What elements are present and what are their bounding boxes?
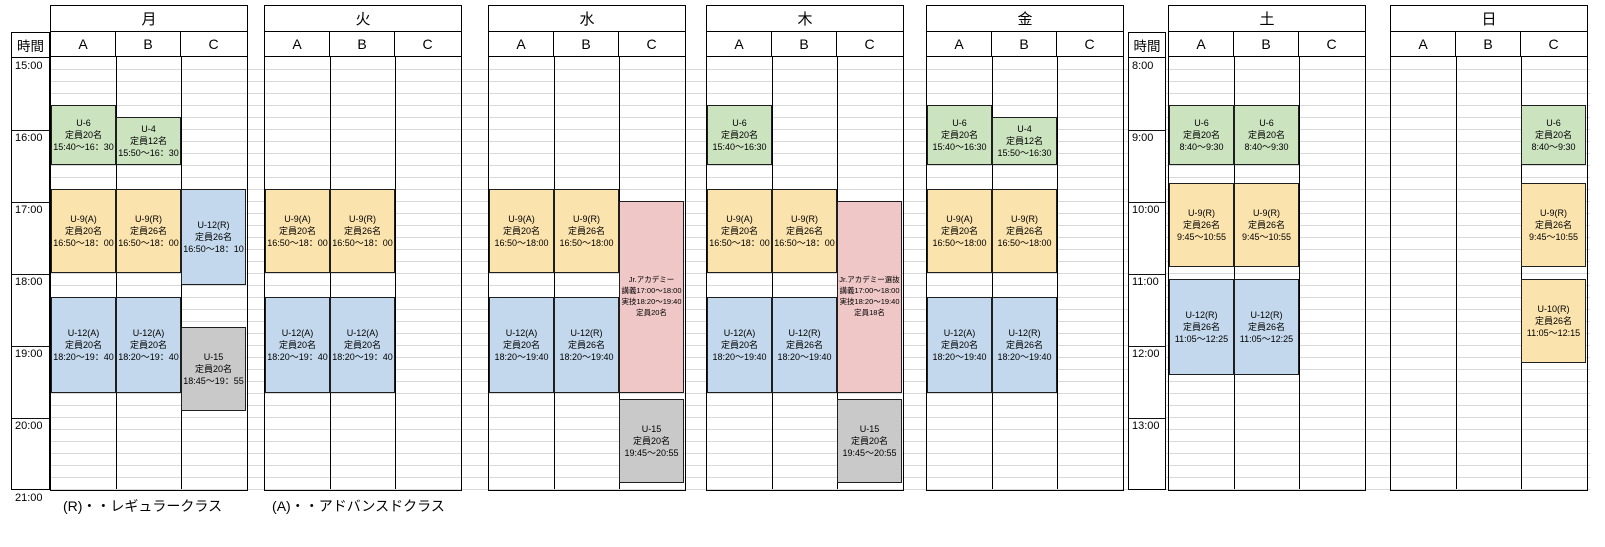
- event-block[interactable]: U-9(R)定員26名9:45～10:55: [1169, 183, 1234, 267]
- event-line: 定員26名: [1535, 315, 1572, 327]
- event-line: U-12(A): [282, 327, 314, 339]
- column-header-b: B: [116, 32, 181, 56]
- event-line: 定員20名: [941, 225, 978, 237]
- event-line: U-15: [204, 351, 224, 363]
- event-line: 定員20名: [503, 225, 540, 237]
- event-line: 9:45～10:55: [1177, 231, 1226, 243]
- event-line: 定員20名: [279, 339, 316, 351]
- time-column-header: 時間: [1128, 32, 1166, 58]
- event-line: U-6: [1259, 117, 1274, 129]
- event-line: U-9(A): [508, 213, 535, 225]
- event-line: U-6: [1194, 117, 1209, 129]
- event-line: 16:50～18:00: [932, 237, 986, 249]
- event-line: U-9(R): [1253, 207, 1280, 219]
- event-line: U-9(R): [1540, 207, 1567, 219]
- column-header-b: B: [992, 32, 1057, 56]
- event-block[interactable]: U-12(R)定員26名11:05～12:25: [1169, 279, 1234, 375]
- hour-line: [1129, 130, 1165, 131]
- event-line: 定員20名: [941, 339, 978, 351]
- event-line: U-12(R): [1185, 309, 1217, 321]
- time-label: 10:00: [1132, 204, 1160, 216]
- event-line: 定員20名: [1248, 129, 1285, 141]
- column-header-row: ABC: [489, 32, 685, 57]
- column-header-c: C: [1299, 32, 1364, 56]
- event-line: 11:05～12:25: [1175, 333, 1228, 345]
- event-line: 実技18:20～19:40: [839, 297, 899, 308]
- event-line: U-9(R): [1188, 207, 1215, 219]
- event-line: U-12(A): [68, 327, 100, 339]
- event-line: 18:20～19：40: [332, 351, 393, 363]
- event-line: U-12(R): [788, 327, 820, 339]
- time-column-body: 15:0016:0017:0018:0019:0020:0021:00: [11, 58, 50, 490]
- event-line: 定員26名: [1183, 321, 1220, 333]
- day-block-thu: 木ABCU-6定員20名15:40～16:30U-9(A)定員20名16:50～…: [706, 5, 904, 491]
- event-line: U-9(R): [1011, 213, 1038, 225]
- column-header-a: A: [707, 32, 772, 56]
- event-line: 11:05～12:15: [1527, 327, 1580, 339]
- event-line: Jr.アカデミー選抜: [839, 275, 899, 286]
- event-line: 16:50～18：00: [709, 237, 770, 249]
- event-line: 定員20名: [851, 435, 888, 447]
- event-line: U-9(R): [349, 213, 376, 225]
- day-body: U-9(A)定員20名16:50～18：00U-9(R)定員26名16:50～1…: [265, 57, 461, 489]
- event-line: 実技18:20～19:40: [621, 297, 681, 308]
- event-line: 16:50～18:00: [494, 237, 548, 249]
- event-block[interactable]: U-9(A)定員20名16:50～18：00: [265, 189, 330, 273]
- event-block[interactable]: U-12(A)定員20名18:20～19：40: [330, 297, 395, 393]
- event-line: U-4: [141, 123, 156, 135]
- hour-line: [12, 418, 49, 419]
- event-line: 16:50～18：00: [118, 237, 179, 249]
- event-line: 19:45～20:55: [842, 447, 896, 459]
- event-line: 16:50～18:00: [559, 237, 613, 249]
- event-block[interactable]: U-12(A)定員20名18:20～19：40: [51, 297, 116, 393]
- time-label: 13:00: [1132, 420, 1160, 432]
- column-header-b: B: [554, 32, 619, 56]
- event-line: 定員20名: [1183, 129, 1220, 141]
- column-divider: [330, 57, 331, 489]
- column-header-c: C: [1057, 32, 1122, 56]
- event-block[interactable]: U-12(A)定員20名18:20～19：40: [116, 297, 181, 393]
- event-block[interactable]: U-15定員20名18:45～19：55: [181, 327, 246, 411]
- event-line: 11:05～12:25: [1240, 333, 1293, 345]
- event-line: U-9(A): [284, 213, 311, 225]
- event-line: U-6: [76, 117, 91, 129]
- event-line: U-6: [1546, 117, 1561, 129]
- event-line: 定員20名: [65, 225, 102, 237]
- event-line: U-12(A): [944, 327, 976, 339]
- legend: (R)・・レギュラークラス (A)・・アドバンスドクラス: [63, 496, 491, 516]
- event-line: U-9(R): [791, 213, 818, 225]
- event-line: 9:45～10:55: [1242, 231, 1291, 243]
- event-block[interactable]: U-9(R)定員26名9:45～10:55: [1234, 183, 1299, 267]
- time-label: 8:00: [1132, 60, 1153, 72]
- event-block[interactable]: U-6定員20名15:40～16:30: [707, 105, 772, 165]
- day-block-mon: 月ABCU-6定員20名15:40～16：30U-4定員12名15:50～16：…: [50, 5, 248, 491]
- event-line: U-12(A): [724, 327, 756, 339]
- hour-line: [12, 202, 49, 203]
- hour-line: [1129, 346, 1165, 347]
- event-line: 18:20～19：40: [118, 351, 179, 363]
- event-block[interactable]: U-12(R)定員26名18:20～19:40: [554, 297, 619, 393]
- event-line: 定員20名: [65, 339, 102, 351]
- event-line: U-10(R): [1537, 303, 1569, 315]
- time-column-left: 時間15:0016:0017:0018:0019:0020:0021:00: [11, 32, 50, 490]
- event-line: 講義17:00～18:00: [839, 286, 899, 297]
- event-block[interactable]: U-15定員20名19:45～20:55: [619, 399, 684, 483]
- hour-line: [12, 274, 49, 275]
- day-header-thu: 木: [707, 6, 903, 32]
- event-line: 定員20名: [130, 339, 167, 351]
- event-block[interactable]: U-6定員20名8:40～9:30: [1521, 105, 1586, 165]
- event-line: 18:20～19:40: [712, 351, 766, 363]
- day-body: U-6定員20名15:40～16:30U-4定員12名15:50～16:30U-…: [927, 57, 1123, 489]
- column-header-row: ABC: [1169, 32, 1365, 57]
- event-line: 16:50～18：10: [183, 243, 244, 255]
- event-line: 19:45～20:55: [624, 447, 678, 459]
- event-line: 定員20名: [941, 129, 978, 141]
- event-block[interactable]: U-9(R)定員26名9:45～10:55: [1521, 183, 1586, 267]
- day-header-wed: 水: [489, 6, 685, 32]
- event-line: 16:50～18:00: [997, 237, 1051, 249]
- event-line: 定員20名: [344, 339, 381, 351]
- hour-line: [12, 130, 49, 131]
- time-label: 17:00: [15, 204, 43, 216]
- event-line: 定員20名: [633, 435, 670, 447]
- day-header-sun: 日: [1391, 6, 1587, 32]
- event-line: 定員26名: [1248, 219, 1285, 231]
- event-block[interactable]: U-10(R)定員26名11:05～12:15: [1521, 279, 1586, 363]
- event-block[interactable]: U-9(R)定員26名16:50～18:00: [992, 189, 1057, 273]
- event-line: 定員26名: [1006, 225, 1043, 237]
- column-header-a: A: [265, 32, 330, 56]
- column-header-b: B: [330, 32, 395, 56]
- event-line: 定員26名: [786, 225, 823, 237]
- event-line: 定員20名: [279, 225, 316, 237]
- event-line: 定員26名: [568, 339, 605, 351]
- column-header-a: A: [1391, 32, 1456, 56]
- column-header-b: B: [772, 32, 837, 56]
- day-header-fri: 金: [927, 6, 1123, 32]
- column-divider: [1456, 57, 1457, 489]
- time-label: 19:00: [15, 348, 43, 360]
- event-line: U-12(R): [570, 327, 602, 339]
- event-line: 定員26名: [130, 225, 167, 237]
- day-block-wed: 水ABCU-9(A)定員20名16:50～18:00U-9(R)定員26名16:…: [488, 5, 686, 491]
- event-line: 15:40～16：30: [53, 141, 114, 153]
- event-line: U-12(A): [347, 327, 379, 339]
- event-block[interactable]: U-9(A)定員20名16:50～18:00: [489, 189, 554, 273]
- time-label: 18:00: [15, 276, 43, 288]
- event-line: 定員26名: [1183, 219, 1220, 231]
- event-block[interactable]: U-12(A)定員20名18:20～19:40: [489, 297, 554, 393]
- event-block[interactable]: U-9(A)定員20名16:50～18：00: [51, 189, 116, 273]
- day-body: U-6定員20名8:40～9:30U-9(R)定員26名9:45～10:55U-…: [1391, 57, 1587, 489]
- event-line: 定員26名: [1535, 219, 1572, 231]
- column-header-a: A: [1169, 32, 1234, 56]
- legend-advanced-class: (A)・・アドバンスドクラス: [272, 498, 445, 514]
- column-header-c: C: [1521, 32, 1586, 56]
- column-header-b: B: [1234, 32, 1299, 56]
- event-line: 15:50～16:30: [997, 147, 1051, 159]
- day-block-tue: 火ABCU-9(A)定員20名16:50～18：00U-9(R)定員26名16:…: [264, 5, 462, 491]
- event-block[interactable]: U-9(A)定員20名16:50～18:00: [927, 189, 992, 273]
- hour-line: [1129, 418, 1165, 419]
- day-body: U-6定員20名8:40～9:30U-6定員20名8:40～9:30U-9(R)…: [1169, 57, 1365, 489]
- schedule-canvas: 時間15:0016:0017:0018:0019:0020:0021:00時間8…: [0, 0, 1605, 547]
- event-block[interactable]: U-9(R)定員26名16:50～18：00: [116, 189, 181, 273]
- event-line: U-12(R): [1250, 309, 1282, 321]
- time-label: 12:00: [1132, 348, 1160, 360]
- time-label: 15:00: [15, 60, 43, 72]
- day-header-tue: 火: [265, 6, 461, 32]
- event-block[interactable]: U-4定員12名15:50～16:30: [992, 117, 1057, 165]
- column-header-c: C: [837, 32, 902, 56]
- day-block-fri: 金ABCU-6定員20名15:40～16:30U-4定員12名15:50～16:…: [926, 5, 1124, 491]
- column-header-b: B: [1456, 32, 1521, 56]
- event-block[interactable]: U-6定員20名8:40～9:30: [1169, 105, 1234, 165]
- day-body: U-9(A)定員20名16:50～18:00U-9(R)定員26名16:50～1…: [489, 57, 685, 489]
- event-line: 18:45～19：55: [183, 375, 244, 387]
- time-column-body: 8:009:0010:0011:0012:0013:00: [1128, 58, 1166, 490]
- event-line: 18:20～19:40: [932, 351, 986, 363]
- event-line: 定員26名: [344, 225, 381, 237]
- event-line: Jr.アカデミー: [629, 275, 674, 286]
- event-line: U-9(A): [946, 213, 973, 225]
- column-header-row: ABC: [51, 32, 247, 57]
- legend-regular-class: (R)・・レギュラークラス: [63, 498, 222, 514]
- event-line: U-6: [952, 117, 967, 129]
- event-block[interactable]: U-4定員12名15:50～16：30: [116, 117, 181, 165]
- event-line: 定員20名: [65, 129, 102, 141]
- event-block[interactable]: U-9(R)定員26名16:50～18:00: [554, 189, 619, 273]
- event-block[interactable]: U-12(A)定員20名18:20～19:40: [927, 297, 992, 393]
- time-column-header: 時間: [11, 32, 50, 58]
- column-header-row: ABC: [927, 32, 1123, 57]
- event-line: 定員12名: [1006, 135, 1043, 147]
- event-line: 定員26名: [568, 225, 605, 237]
- event-line: 定員20名: [721, 225, 758, 237]
- event-line: 9:45～10:55: [1529, 231, 1578, 243]
- event-block[interactable]: U-12(R)定員26名16:50～18：10: [181, 189, 246, 285]
- event-line: U-12(R): [1008, 327, 1040, 339]
- event-line: U-12(A): [133, 327, 165, 339]
- event-block[interactable]: U-12(R)定員26名11:05～12:25: [1234, 279, 1299, 375]
- time-label: 20:00: [15, 420, 43, 432]
- event-line: 定員26名: [1248, 321, 1285, 333]
- event-block[interactable]: U-6定員20名15:40～16：30: [51, 105, 116, 165]
- time-column-right: 時間8:009:0010:0011:0012:0013:00: [1128, 32, 1166, 490]
- event-line: 18:20～19:40: [997, 351, 1051, 363]
- event-block[interactable]: U-15定員20名19:45～20:55: [837, 399, 902, 483]
- event-block[interactable]: U-9(R)定員26名16:50～18：00: [330, 189, 395, 273]
- event-line: 15:50～16：30: [118, 147, 179, 159]
- event-line: 定員12名: [130, 135, 167, 147]
- column-header-c: C: [619, 32, 684, 56]
- event-line: U-9(R): [573, 213, 600, 225]
- event-line: 定員20名: [721, 129, 758, 141]
- event-block[interactable]: U-6定員20名8:40～9:30: [1234, 105, 1299, 165]
- event-line: 講義17:00～18:00: [621, 286, 681, 297]
- event-line: 16:50～18：00: [774, 237, 835, 249]
- event-line: 16:50～18：00: [332, 237, 393, 249]
- time-label: 21:00: [15, 492, 43, 504]
- event-line: 定員20名: [721, 339, 758, 351]
- event-line: 8:40～9:30: [1531, 141, 1575, 153]
- day-body: U-6定員20名15:40～16：30U-4定員12名15:50～16：30U-…: [51, 57, 247, 489]
- time-label: 9:00: [1132, 132, 1153, 144]
- time-label: 11:00: [1132, 276, 1159, 288]
- column-header-row: ABC: [1391, 32, 1587, 57]
- column-header-row: ABC: [707, 32, 903, 57]
- event-line: 18:20～19：40: [53, 351, 114, 363]
- event-line: 16:50～18：00: [53, 237, 114, 249]
- event-line: 定員20名: [636, 308, 667, 319]
- hour-line: [1129, 202, 1165, 203]
- column-header-row: ABC: [265, 32, 461, 57]
- event-line: 18:20～19：40: [267, 351, 328, 363]
- event-block[interactable]: Jr.アカデミー選抜講義17:00～18:00実技18:20～19:40定員18…: [837, 201, 902, 393]
- hour-line: [12, 346, 49, 347]
- event-line: U-12(R): [197, 219, 229, 231]
- event-line: U-9(A): [70, 213, 97, 225]
- event-block[interactable]: U-9(A)定員20名16:50～18：00: [707, 189, 772, 273]
- event-line: 15:40～16:30: [932, 141, 986, 153]
- event-line: 定員20名: [503, 339, 540, 351]
- event-line: U-6: [732, 117, 747, 129]
- event-block[interactable]: Jr.アカデミー講義17:00～18:00実技18:20～19:40定員20名: [619, 201, 684, 393]
- column-header-a: A: [51, 32, 116, 56]
- column-header-a: A: [489, 32, 554, 56]
- column-header-c: C: [181, 32, 246, 56]
- day-block-sun: 日ABCU-6定員20名8:40～9:30U-9(R)定員26名9:45～10:…: [1390, 5, 1588, 491]
- event-line: 16:50～18：00: [267, 237, 328, 249]
- event-line: U-4: [1017, 123, 1032, 135]
- column-divider: [554, 57, 555, 489]
- event-line: 15:40～16:30: [712, 141, 766, 153]
- day-block-sat: 土ABCU-6定員20名8:40～9:30U-6定員20名8:40～9:30U-…: [1168, 5, 1366, 491]
- day-header-sat: 土: [1169, 6, 1365, 32]
- hour-line: [1129, 274, 1165, 275]
- event-line: 定員26名: [195, 231, 232, 243]
- event-line: 定員20名: [195, 363, 232, 375]
- event-block[interactable]: U-6定員20名15:40～16:30: [927, 105, 992, 165]
- event-line: U-15: [642, 423, 662, 435]
- event-line: 18:20～19:40: [559, 351, 613, 363]
- event-line: U-9(R): [135, 213, 162, 225]
- event-line: 18:20～19:40: [494, 351, 548, 363]
- event-block[interactable]: U-12(R)定員26名18:20～19:40: [772, 297, 837, 393]
- column-header-a: A: [927, 32, 992, 56]
- column-divider: [395, 57, 396, 489]
- event-block[interactable]: U-9(R)定員26名16:50～18：00: [772, 189, 837, 273]
- time-label: 16:00: [15, 132, 43, 144]
- event-line: U-9(A): [726, 213, 753, 225]
- event-line: 18:20～19:40: [777, 351, 831, 363]
- event-line: 定員20名: [1535, 129, 1572, 141]
- event-line: 定員26名: [1006, 339, 1043, 351]
- event-line: 8:40～9:30: [1244, 141, 1288, 153]
- event-line: 8:40～9:30: [1179, 141, 1223, 153]
- event-line: 定員26名: [786, 339, 823, 351]
- day-body: U-6定員20名15:40～16:30U-9(A)定員20名16:50～18：0…: [707, 57, 903, 489]
- event-line: U-15: [860, 423, 880, 435]
- event-line: 定員18名: [854, 308, 885, 319]
- column-header-c: C: [395, 32, 460, 56]
- day-header-mon: 月: [51, 6, 247, 32]
- event-block[interactable]: U-12(R)定員26名18:20～19:40: [992, 297, 1057, 393]
- event-line: U-12(A): [506, 327, 538, 339]
- event-block[interactable]: U-12(A)定員20名18:20～19：40: [265, 297, 330, 393]
- event-block[interactable]: U-12(A)定員20名18:20～19:40: [707, 297, 772, 393]
